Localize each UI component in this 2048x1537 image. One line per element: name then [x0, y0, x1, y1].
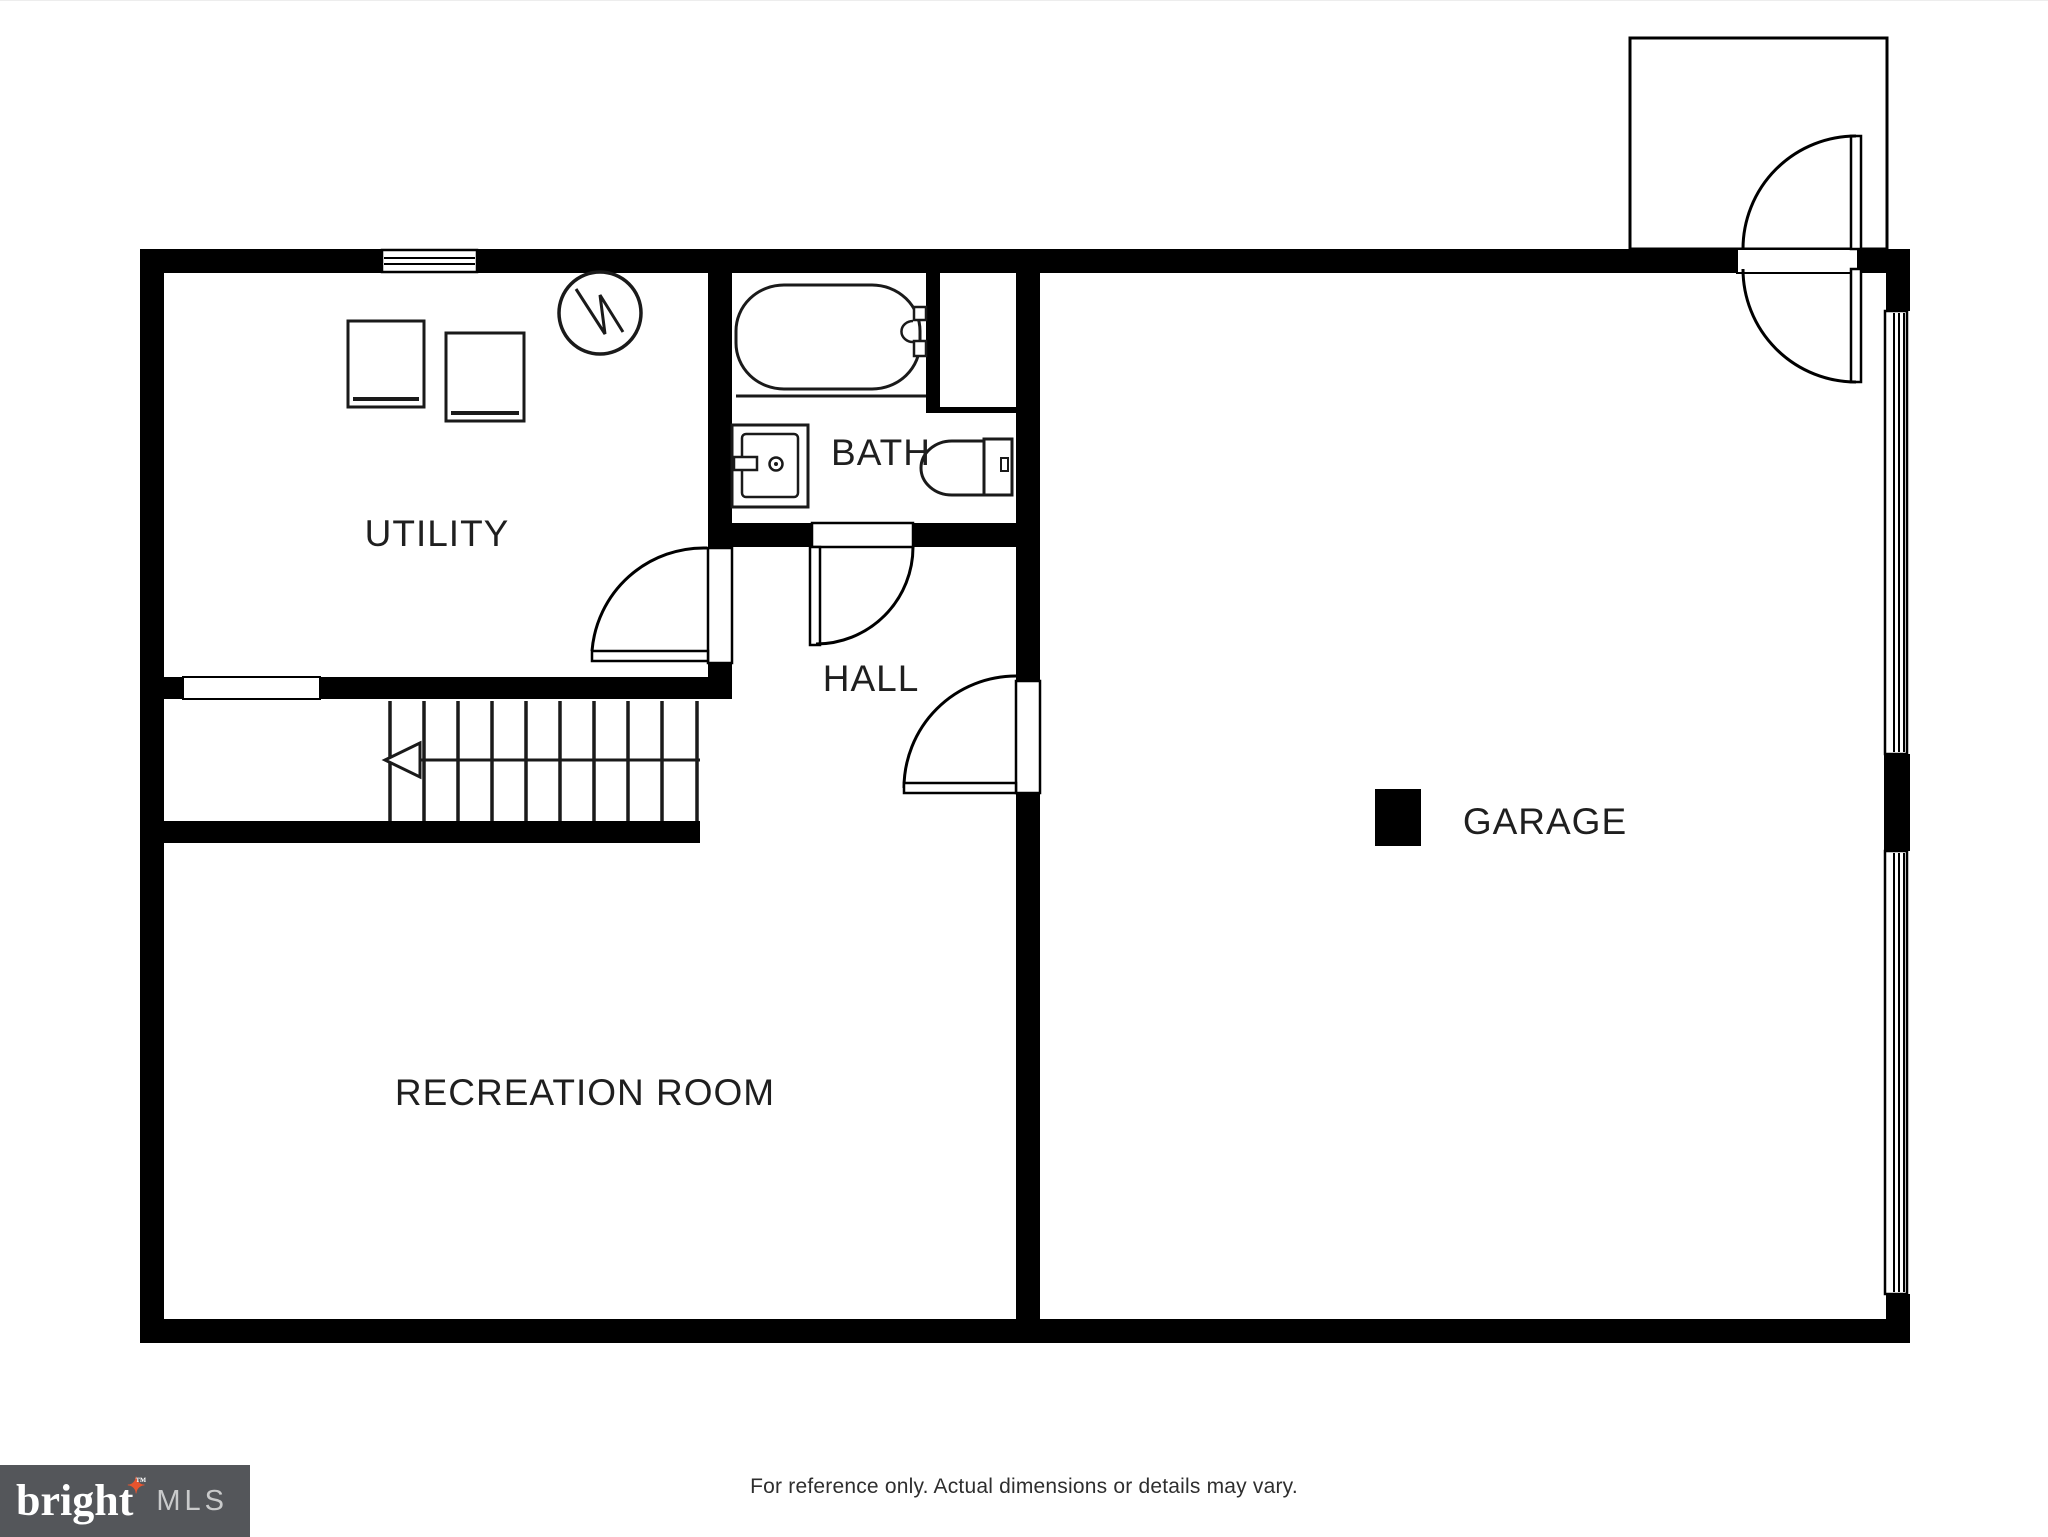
floor-plan-page: UTILITY BATH HALL GARAGE RECREATION ROOM…	[0, 0, 2048, 1537]
bathtub	[736, 285, 926, 396]
recreation-room-label: RECREATION ROOM	[395, 1072, 775, 1113]
garage-door-opening-south	[1885, 851, 1907, 1294]
support-column	[1375, 789, 1421, 846]
bath-door	[810, 523, 913, 645]
disclaimer-text: For reference only. Actual dimensions or…	[0, 1475, 2048, 1499]
stair-direction-arrow	[385, 743, 700, 777]
bright-mls-logo: bright✦™ MLS	[0, 1465, 250, 1537]
entry-stoop	[1630, 38, 1887, 249]
logo-brand-word: bright	[16, 1476, 133, 1525]
floor-plan-drawing: UTILITY BATH HALL GARAGE RECREATION ROOM	[0, 1, 2048, 1537]
bath-label: BATH	[831, 432, 931, 473]
washer	[348, 321, 424, 407]
windows	[183, 250, 1907, 1294]
water-heater	[559, 272, 641, 354]
stair-landing-opening	[183, 677, 320, 699]
logo-suffix-text: MLS	[156, 1485, 228, 1518]
stairs	[385, 701, 700, 821]
logo-trademark: ™	[135, 1476, 146, 1488]
hall-label: HALL	[823, 658, 920, 699]
exterior-entry-door	[1630, 38, 1887, 382]
utility-door	[592, 548, 732, 663]
dryer	[446, 333, 524, 421]
logo-brand-text: bright✦™	[16, 1479, 144, 1523]
doors	[592, 38, 1887, 793]
garage-entry-door	[904, 676, 1040, 793]
garage-fixtures	[1375, 789, 1421, 846]
garage-door-opening-north	[1885, 311, 1907, 754]
sink	[732, 425, 808, 507]
utility-label: UTILITY	[365, 513, 510, 554]
garage-label: GARAGE	[1463, 801, 1627, 842]
utility-window	[382, 250, 477, 272]
toilet	[921, 439, 1012, 495]
bath-fixtures	[732, 285, 1012, 507]
utility-fixtures	[348, 272, 641, 421]
